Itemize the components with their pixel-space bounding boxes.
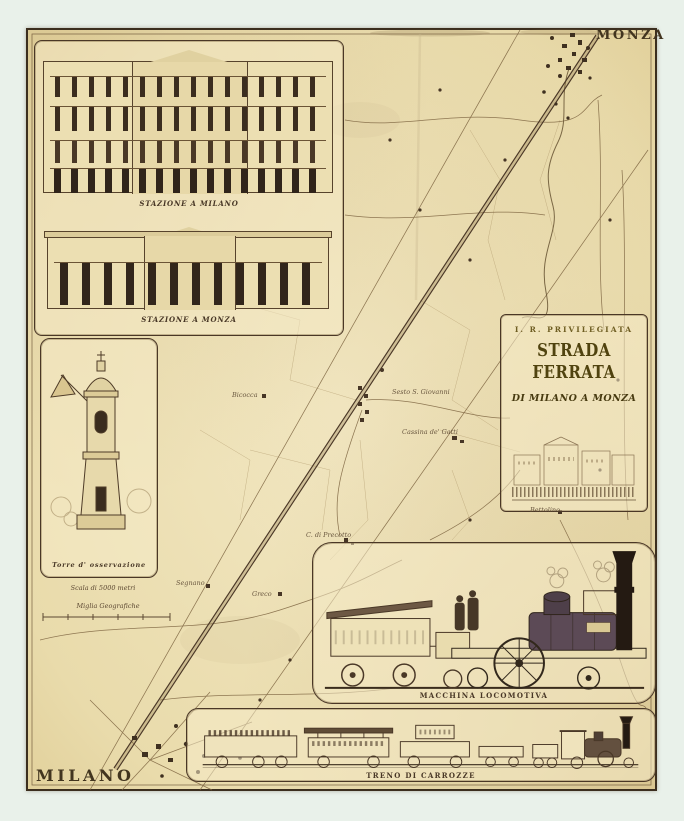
- scanned-print: { "cities": { "monza": "MONZA", "milano"…: [0, 0, 684, 821]
- tower-inset: Torre d' osservazione: [40, 338, 158, 578]
- cartouche-subtitle: DI MILANO A MONZA: [501, 393, 647, 404]
- place-label-cassina: Cassina de' Gatti: [402, 428, 458, 436]
- locomotive-inset: MACCHINA LOCOMOTIVA: [312, 542, 656, 704]
- scale-metri-label: Scala di 5000 metri: [28, 584, 178, 592]
- place-label-bettolino: Bettolino: [530, 506, 560, 514]
- double-deck-wagon: [400, 725, 469, 767]
- monza-city-label: MONZA: [596, 28, 666, 43]
- monza-station-facade: [47, 235, 329, 309]
- open-carriage: [205, 733, 297, 768]
- milano-station-window-row-3: [50, 140, 326, 163]
- stations-inset: STAZIONE A MILANO STAZIONE A MONZA: [34, 40, 344, 336]
- tender-wagon: [327, 601, 454, 686]
- small-locomotive: [560, 717, 634, 769]
- train-drawing: [187, 709, 654, 780]
- builder-plate: [587, 623, 611, 633]
- scale-bar: [38, 610, 178, 624]
- place-label-bicocca: Bicocca: [232, 391, 258, 399]
- milano-city-label: MILANO: [36, 766, 134, 785]
- crew-figures: [436, 590, 479, 688]
- river: [522, 66, 570, 318]
- scale-miglia-label: Miglia Geografiche: [38, 602, 178, 610]
- cartouche-title: STRADA FERRATA: [501, 339, 647, 382]
- steam-plumes: [547, 561, 614, 588]
- scale-block: Scala di 5000 metri Miglia Geografiche: [38, 584, 178, 636]
- locomotive-body: [452, 551, 646, 689]
- place-label-sesto: Sesto S. Giovanni: [392, 388, 450, 396]
- milano-station-arcade-row: [50, 168, 326, 193]
- place-label-greco: Greco: [252, 590, 272, 598]
- place-label-segnano: Segnano: [176, 579, 205, 587]
- covered-carriage: [304, 728, 392, 767]
- cartouche-vignette: [508, 429, 640, 505]
- locomotive-drawing: [313, 543, 654, 702]
- title-cartouche: I. R. PRIVILEGIATA STRADA FERRATA DI MIL…: [500, 314, 648, 512]
- flat-wagon: [479, 746, 523, 766]
- cartouche-privilege-line: I. R. PRIVILEGIATA: [501, 325, 647, 334]
- train-inset: TRENO DI CARROZZE: [186, 708, 656, 782]
- station-monza-caption: STAZIONE A MONZA: [35, 315, 343, 324]
- monza-station-doorway-row: [54, 262, 322, 305]
- milano-station-window-row-1: [50, 76, 326, 97]
- station-milano-caption: STAZIONE A MILANO: [35, 199, 343, 208]
- tower-caption: Torre d' osservazione: [41, 561, 157, 569]
- locomotive-caption: MACCHINA LOCOMOTIVA: [313, 691, 655, 700]
- milano-station-window-row-2: [50, 106, 326, 131]
- milano-station-facade: [43, 61, 333, 193]
- tower-drawing: [41, 339, 156, 547]
- train-caption: TRENO DI CARROZZE: [187, 771, 655, 780]
- place-label-precotto: C. di Precotto: [306, 531, 351, 539]
